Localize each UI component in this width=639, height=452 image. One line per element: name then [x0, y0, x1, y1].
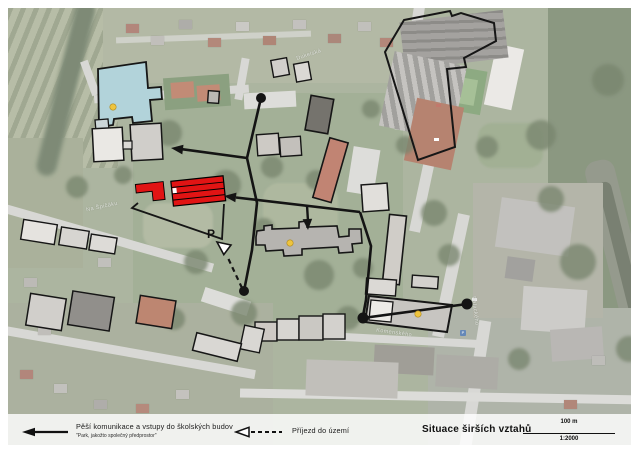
aerial-basemap: P Na Špičáku Dukelská Palackého Komenské… — [8, 8, 631, 445]
pedestrian-legend-note: "Park, jakožto společný předprostor" — [76, 433, 233, 439]
scale-distance: 100 m — [523, 419, 615, 425]
scale-line — [523, 433, 615, 434]
scale-ratio: 1:2000 — [523, 436, 615, 442]
scale-bar: 100 m 1:2000 — [523, 416, 615, 444]
site-plan: P Na Špičáku Dukelská Palackého Komenské… — [0, 0, 639, 452]
approach-legend-label: Příjezd do území — [292, 426, 349, 435]
pedestrian-arrow-icon — [20, 425, 70, 439]
pedestrian-legend-label: Pěší komunikace a vstupy do školských bu… — [76, 422, 233, 431]
approach-arrow-icon — [234, 425, 284, 439]
map-title: Situace širších vztahů — [422, 424, 531, 435]
legend-bar: Pěší komunikace a vstupy do školských bu… — [8, 414, 631, 445]
aerial-photo-texture: P — [8, 8, 631, 445]
